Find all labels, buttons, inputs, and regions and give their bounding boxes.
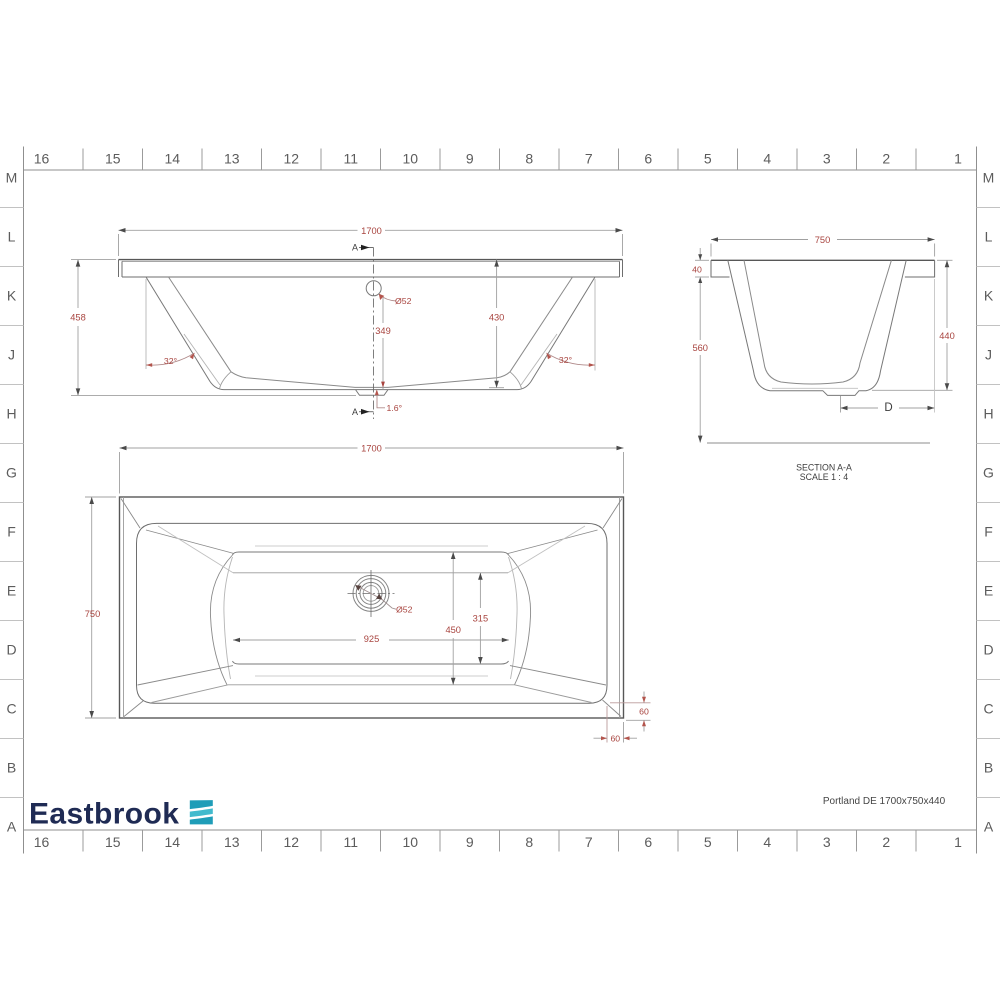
svg-text:16: 16 [34, 151, 50, 167]
svg-text:925: 925 [364, 634, 380, 644]
svg-text:40: 40 [692, 265, 702, 275]
svg-text:1: 1 [954, 834, 962, 850]
svg-text:9: 9 [466, 151, 474, 167]
svg-text:315: 315 [473, 614, 489, 624]
svg-text:750: 750 [815, 235, 831, 245]
svg-text:9: 9 [466, 834, 474, 850]
svg-text:5: 5 [704, 834, 712, 850]
svg-text:14: 14 [164, 151, 180, 167]
svg-text:8: 8 [525, 834, 533, 850]
svg-text:Portland DE 1700x750x440: Portland DE 1700x750x440 [823, 796, 946, 807]
svg-text:A: A [352, 243, 358, 253]
svg-text:G: G [6, 465, 17, 481]
svg-text:8: 8 [525, 151, 533, 167]
svg-text:H: H [6, 406, 16, 422]
svg-text:14: 14 [164, 834, 180, 850]
svg-text:H: H [983, 406, 993, 422]
svg-text:SCALE 1 : 4: SCALE 1 : 4 [800, 472, 849, 482]
svg-text:K: K [7, 288, 17, 304]
svg-text:32°: 32° [559, 355, 572, 365]
svg-text:60: 60 [610, 734, 620, 744]
svg-text:10: 10 [402, 151, 418, 167]
svg-text:4: 4 [763, 151, 771, 167]
svg-text:J: J [985, 347, 992, 363]
svg-text:750: 750 [85, 609, 101, 619]
svg-text:11: 11 [343, 151, 358, 167]
svg-text:C: C [983, 701, 993, 717]
svg-text:1.6°: 1.6° [387, 403, 403, 413]
svg-text:F: F [984, 524, 993, 540]
svg-text:12: 12 [283, 834, 299, 850]
svg-text:5: 5 [704, 151, 712, 167]
svg-text:D: D [983, 642, 993, 658]
svg-text:B: B [984, 760, 993, 776]
svg-text:60: 60 [639, 707, 649, 717]
svg-text:K: K [984, 288, 994, 304]
svg-text:7: 7 [585, 834, 593, 850]
svg-text:2: 2 [882, 834, 890, 850]
svg-text:560: 560 [692, 343, 708, 353]
svg-text:13: 13 [224, 834, 240, 850]
svg-text:349: 349 [375, 326, 391, 336]
svg-text:L: L [8, 229, 16, 245]
svg-text:A: A [7, 819, 17, 835]
svg-text:3: 3 [823, 834, 831, 850]
svg-text:1700: 1700 [361, 226, 382, 236]
svg-text:15: 15 [105, 834, 121, 850]
svg-text:Ø52: Ø52 [396, 605, 413, 615]
svg-text:10: 10 [402, 834, 418, 850]
svg-text:1: 1 [954, 151, 962, 167]
svg-text:32°: 32° [164, 356, 177, 366]
svg-text:440: 440 [939, 331, 955, 341]
svg-text:L: L [985, 229, 993, 245]
svg-text:B: B [7, 760, 16, 776]
svg-text:458: 458 [70, 313, 86, 323]
svg-text:E: E [7, 583, 16, 599]
svg-text:7: 7 [585, 151, 593, 167]
svg-text:M: M [983, 170, 995, 186]
svg-text:11: 11 [343, 834, 358, 850]
svg-text:M: M [6, 170, 18, 186]
svg-text:13: 13 [224, 151, 240, 167]
svg-text:G: G [983, 465, 994, 481]
svg-text:D: D [6, 642, 16, 658]
svg-text:2: 2 [882, 151, 890, 167]
svg-text:J: J [8, 347, 15, 363]
svg-text:6: 6 [644, 834, 652, 850]
svg-text:450: 450 [445, 625, 461, 635]
svg-text:F: F [7, 524, 16, 540]
svg-text:6: 6 [644, 151, 652, 167]
svg-text:12: 12 [283, 151, 299, 167]
svg-text:C: C [6, 701, 16, 717]
svg-text:Eastbrook: Eastbrook [29, 798, 179, 831]
svg-text:A: A [984, 819, 994, 835]
svg-text:16: 16 [34, 834, 50, 850]
svg-text:E: E [984, 583, 993, 599]
svg-text:3: 3 [823, 151, 831, 167]
svg-text:Ø52: Ø52 [395, 296, 412, 306]
svg-text:1700: 1700 [361, 444, 382, 454]
svg-text:430: 430 [489, 313, 505, 323]
svg-text:A: A [352, 407, 358, 417]
svg-text:4: 4 [763, 834, 771, 850]
svg-text:D: D [884, 402, 892, 414]
svg-text:15: 15 [105, 151, 121, 167]
